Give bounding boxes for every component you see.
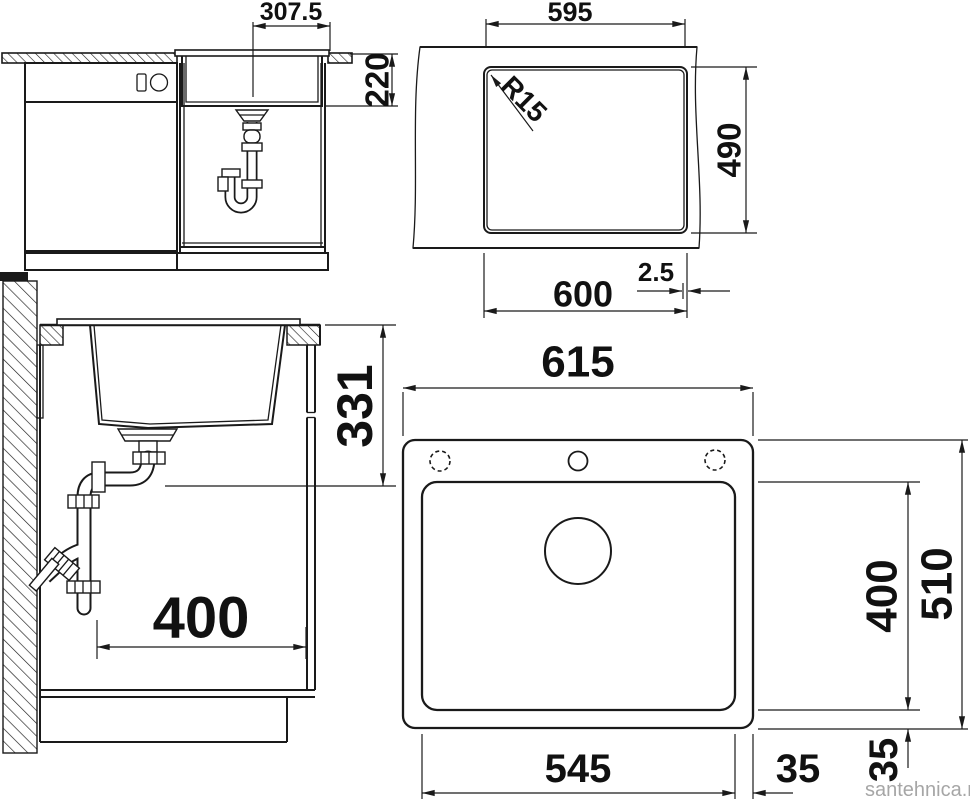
side-counter-front xyxy=(287,325,320,345)
cutout-dim-outer-width-label: 600 xyxy=(553,274,613,315)
side-bowl xyxy=(90,325,285,428)
front-dishwasher-cabinet xyxy=(25,63,177,251)
dishwasher-control-knob xyxy=(151,74,168,91)
front-plinth xyxy=(25,253,328,270)
cutout-dim-inner-width-label: 595 xyxy=(547,0,592,27)
cutout-dim-inner-width: 595 xyxy=(486,0,685,46)
cutout-dim-corner-radius-label: R15 xyxy=(495,70,553,128)
plan-dim-bowl-depth: 400 xyxy=(758,482,920,710)
front-sink-bowl xyxy=(175,50,329,106)
cutout-dim-edge-offset-label: 2.5 xyxy=(638,257,674,287)
cutout-dim-corner-radius: R15 xyxy=(491,70,553,131)
side-dim-counter-to-drain: 331 xyxy=(165,325,396,486)
front-dim-bowl-depth-label: 220 xyxy=(359,52,396,107)
cutout-dim-depth-label: 490 xyxy=(711,122,748,177)
side-dim-wall-to-front: 400 xyxy=(97,586,306,660)
cutout-view: R15 595 490 600 2.5 xyxy=(413,0,757,318)
plan-dim-front-margin-label: 35 xyxy=(862,738,906,783)
plan-dim-bowl-depth-label: 400 xyxy=(858,559,907,632)
faucet-hole-right-optional xyxy=(705,450,725,470)
wall-top-cap xyxy=(0,272,28,281)
plan-dim-front-margin: 35 xyxy=(862,729,908,782)
technical-drawing-canvas: 307.5 220 R15 595 xyxy=(0,0,970,800)
side-view: 331 400 xyxy=(0,272,396,753)
side-dim-wall-to-front-label: 400 xyxy=(153,586,250,651)
side-drain-trap xyxy=(29,429,177,608)
side-counter-back xyxy=(40,325,63,345)
countertop-section xyxy=(413,47,700,248)
cutout-dim-edge-offset: 2.5 xyxy=(637,257,730,299)
plan-bowl-outline xyxy=(422,482,735,710)
faucet-hole-left-optional xyxy=(430,451,450,471)
plan-dim-overall-depth-label: 510 xyxy=(913,547,962,620)
plan-dim-side-margin-label: 35 xyxy=(776,747,821,791)
front-view: 307.5 220 xyxy=(2,0,398,270)
plan-dim-overall-width: 615 xyxy=(403,338,753,437)
front-countertop-right xyxy=(328,53,352,63)
plan-dim-side-margin: 35 xyxy=(753,734,820,799)
side-panel-joint xyxy=(306,413,317,418)
plan-dim-bowl-width: 545 xyxy=(422,734,735,799)
plan-dim-bowl-width-label: 545 xyxy=(545,747,612,791)
front-countertop-left xyxy=(2,53,177,63)
technical-drawing-page: 307.5 220 R15 595 xyxy=(0,0,970,800)
side-sink-rim xyxy=(57,319,300,325)
faucet-hole-center xyxy=(569,452,588,471)
plan-drain xyxy=(545,518,611,584)
front-dim-center-to-edge-label: 307.5 xyxy=(260,0,323,26)
wall-section xyxy=(3,281,37,753)
plan-view: santehnica.ru 615 545 35 400 xyxy=(403,338,970,800)
dishwasher-control-slot xyxy=(137,74,146,91)
plan-dim-overall-width-label: 615 xyxy=(541,338,614,387)
cutout-dim-depth: 490 xyxy=(691,67,757,233)
side-dim-counter-to-drain-label: 331 xyxy=(327,364,383,447)
front-drain-trap xyxy=(218,110,268,208)
